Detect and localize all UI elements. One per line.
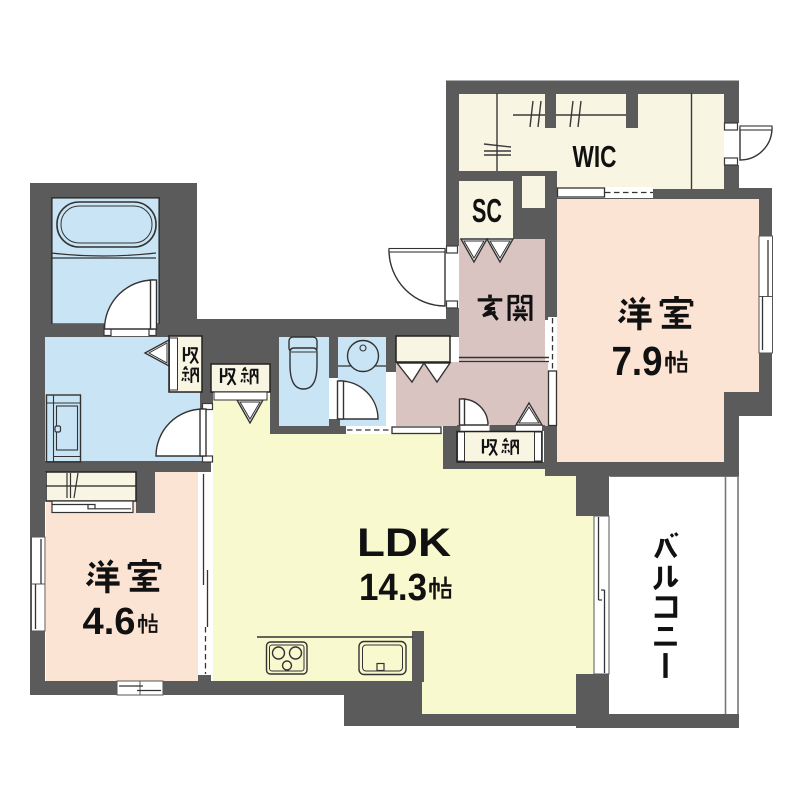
svg-text:LDK: LDK [357,521,451,565]
svg-text:WIC: WIC [573,139,617,174]
svg-text:SC: SC [472,192,502,229]
svg-text:14.3: 14.3 [359,567,427,609]
svg-text:4.6: 4.6 [83,601,136,643]
svg-text:7.9: 7.9 [612,338,663,384]
